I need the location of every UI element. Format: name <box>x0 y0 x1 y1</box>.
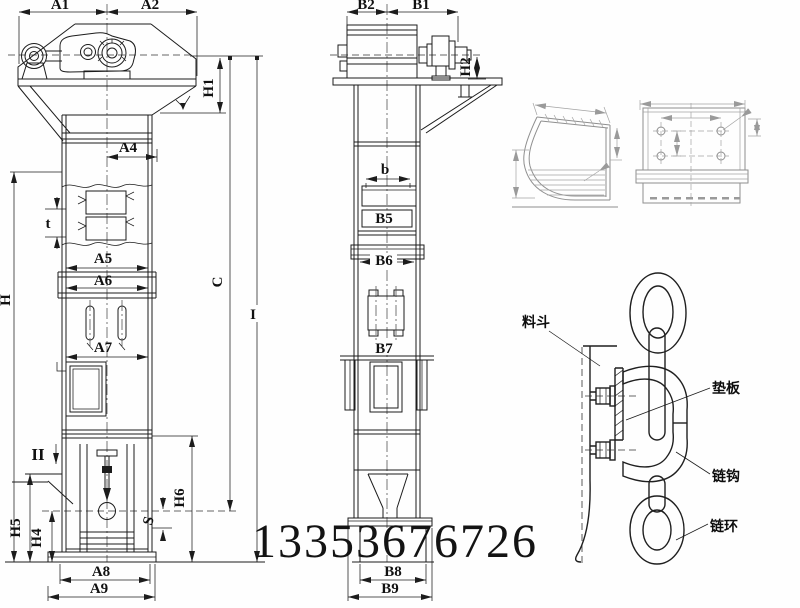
dim-i-label: I <box>250 307 256 323</box>
dim-a8-label: A8 <box>92 564 110 580</box>
front-view: A1 A2 H1 A4 t A5 A6 A7 A8 A9 <box>0 0 265 601</box>
backing-plate <box>615 368 623 440</box>
dim-b2-label: B2 <box>357 0 375 13</box>
dim-a4-label: A4 <box>119 140 138 156</box>
side-casing <box>354 85 420 518</box>
dim-h2-label: H2 <box>458 57 474 76</box>
label-backing-plate: 垫板 <box>712 380 741 397</box>
label-chain-link: 链环 <box>710 518 738 535</box>
chain-hook-outline <box>623 366 687 481</box>
dim-b9-label: B9 <box>381 581 399 597</box>
dim-a2-label: A2 <box>141 0 159 13</box>
side-view: B2 B1 H2 b B5 B6 B7 B8 B9 <box>330 0 502 601</box>
dim-h5-label: H5 <box>8 518 24 537</box>
dim-h1-label: H1 <box>201 78 217 97</box>
bucket-back-detail <box>636 100 761 206</box>
dim-b6-label: B6 <box>375 253 393 269</box>
dim-a6-label: A6 <box>94 273 113 289</box>
drawing-sheet: A1 A2 H1 A4 t A5 A6 A7 A8 A9 <box>0 0 800 608</box>
inspection-door <box>57 362 106 416</box>
roller-assembly <box>368 286 404 342</box>
chain-ring-top <box>630 273 686 353</box>
dim-h-label: H <box>0 294 14 306</box>
chain-ring-bottom <box>630 496 684 564</box>
dim-t-label: t <box>46 216 51 232</box>
dim-h6-label: H6 <box>172 488 188 508</box>
section-ii-label: II <box>31 445 45 464</box>
dim-c-label: C <box>210 277 226 288</box>
dim-b7-label: B7 <box>375 341 393 357</box>
watermark-phone: 13353676726 <box>252 515 538 568</box>
dim-s-label: S <box>140 515 158 527</box>
dim-b5-label: B5 <box>375 211 393 227</box>
dim-b1-label: B1 <box>412 0 430 13</box>
label-chain-hook: 链钩 <box>712 468 740 485</box>
elevator-technical-drawing: A1 A2 H1 A4 t A5 A6 A7 A8 A9 <box>0 0 800 608</box>
dim-b-label: b <box>381 162 389 178</box>
dim-a7-label: A7 <box>94 340 113 356</box>
dim-h4-label: H4 <box>29 528 45 548</box>
dim-a5-label: A5 <box>94 251 112 267</box>
bucket-side-detail <box>512 103 622 207</box>
label-bucket: 料斗 <box>522 314 550 331</box>
dim-a9-label: A9 <box>90 581 108 597</box>
bolts <box>585 386 640 460</box>
dim-a1-label: A1 <box>51 0 69 13</box>
chain-detail: 料斗 垫板 链钩 链环 <box>522 273 741 564</box>
drive-machinery <box>22 33 136 79</box>
side-head <box>338 25 417 78</box>
